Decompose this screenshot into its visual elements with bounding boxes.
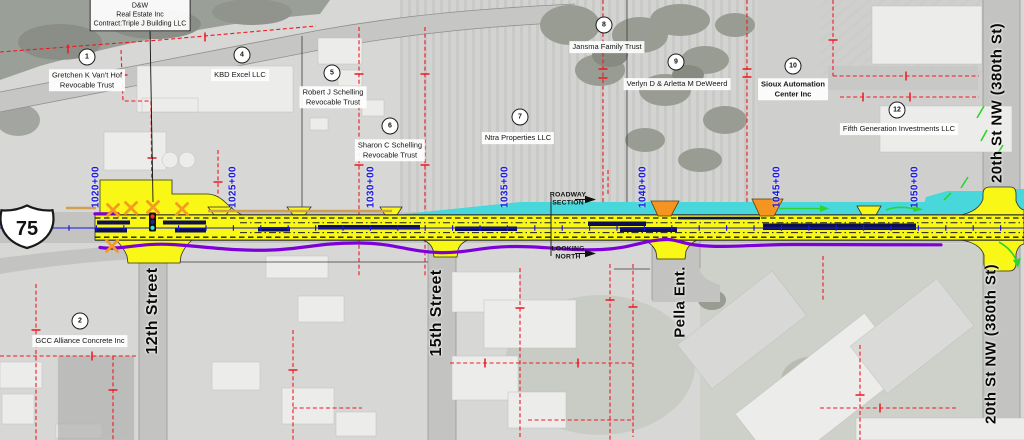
parcel-label-1: Gretchen K Van't Hof Revocable Trust: [49, 69, 125, 91]
parcel-label-2: GCC Alliance Concrete Inc: [32, 335, 127, 347]
parcel-label-5-line1: Robert J Schelling: [303, 87, 364, 97]
callout-looking-north: LOOKING NORTH: [551, 245, 584, 260]
parcel-circle-2: 2: [72, 313, 89, 330]
parcel-circle-1: 1: [79, 49, 96, 66]
parcel-label-6-line1: Sharon C Schelling: [358, 140, 422, 150]
station-label-1050: 1050+00: [910, 166, 921, 208]
callout-north-line2: NORTH: [551, 253, 584, 261]
street-label-15th: 15th Street: [428, 269, 446, 356]
station-label-1020: 1020+00: [91, 166, 102, 208]
parcel-label-9: Verlyn D & Arletta M DeWeerd: [624, 78, 731, 90]
route-shield-number: 75: [16, 218, 38, 240]
parcel-circle-4: 4: [234, 47, 251, 64]
parcel-circle-6: 6: [382, 118, 399, 135]
parcel-label-4: KBD Excel LLC: [211, 69, 269, 81]
parcel-label-10: Sioux Automation Center Inc: [758, 78, 828, 100]
station-label-1025: 1025+00: [228, 166, 239, 208]
station-label-1045: 1045+00: [772, 166, 783, 208]
street-label-12th: 12th Street: [144, 267, 162, 354]
parcel-circle-7: 7: [512, 109, 529, 126]
callout-roadway-section: ROADWAY SECTION: [550, 191, 586, 206]
street-label-20th-top: 20th St NW (380th St): [989, 23, 1006, 183]
street-label-20th-bottom: 20th St NW (380th St): [983, 264, 1000, 424]
parcel-label-6: Sharon C Schelling Revocable Trust: [355, 139, 425, 161]
callout-north-line1: LOOKING: [551, 245, 584, 253]
traffic-signal-icon: [149, 213, 156, 232]
plan-map-canvas: 75: [0, 0, 1024, 440]
parcel-circle-10: 10: [785, 58, 802, 75]
dw-label-line2: Real Estate Inc: [94, 10, 187, 19]
station-label-1030: 1030+00: [366, 166, 377, 208]
parcel-label-6-line2: Revocable Trust: [358, 150, 422, 160]
parcel-label-5-line2: Revocable Trust: [303, 97, 364, 107]
parcel-circle-12: 12: [889, 102, 906, 119]
callout-roadway-line2: SECTION: [550, 199, 586, 207]
callout-roadway-line1: ROADWAY: [550, 191, 586, 199]
parcel-label-10-line1: Sioux Automation: [761, 79, 825, 89]
dw-label-line1: D&W: [94, 1, 187, 10]
dw-ownership-label: D&W Real Estate Inc Contract:Triple J Bu…: [90, 0, 191, 32]
roadway-plan-sheet: 75 1020+00 1025+00 1030+00 1035+00 1040+…: [0, 0, 1024, 440]
parcel-circle-9: 9: [668, 54, 685, 71]
parcel-label-10-line2: Center Inc: [761, 89, 825, 99]
parcel-label-5: Robert J Schelling Revocable Trust: [300, 86, 367, 108]
parcel-circle-5: 5: [324, 65, 341, 82]
parcel-label-1-line1: Gretchen K Van't Hof: [52, 70, 122, 80]
station-label-1035: 1035+00: [500, 166, 511, 208]
street-label-pella: Pella Ent.: [672, 266, 689, 338]
dw-label-line3: Contract:Triple J Building LLC: [94, 20, 187, 29]
parcel-label-12: Fifth Generation Investments LLC: [840, 123, 958, 135]
parcel-label-8: Jansma Family Trust: [569, 41, 644, 53]
station-label-1040: 1040+00: [638, 166, 649, 208]
parcel-label-7: Ntra Properties LLC: [482, 132, 554, 144]
parcel-circle-8: 8: [596, 17, 613, 34]
parcel-label-1-line2: Revocable Trust: [52, 80, 122, 90]
